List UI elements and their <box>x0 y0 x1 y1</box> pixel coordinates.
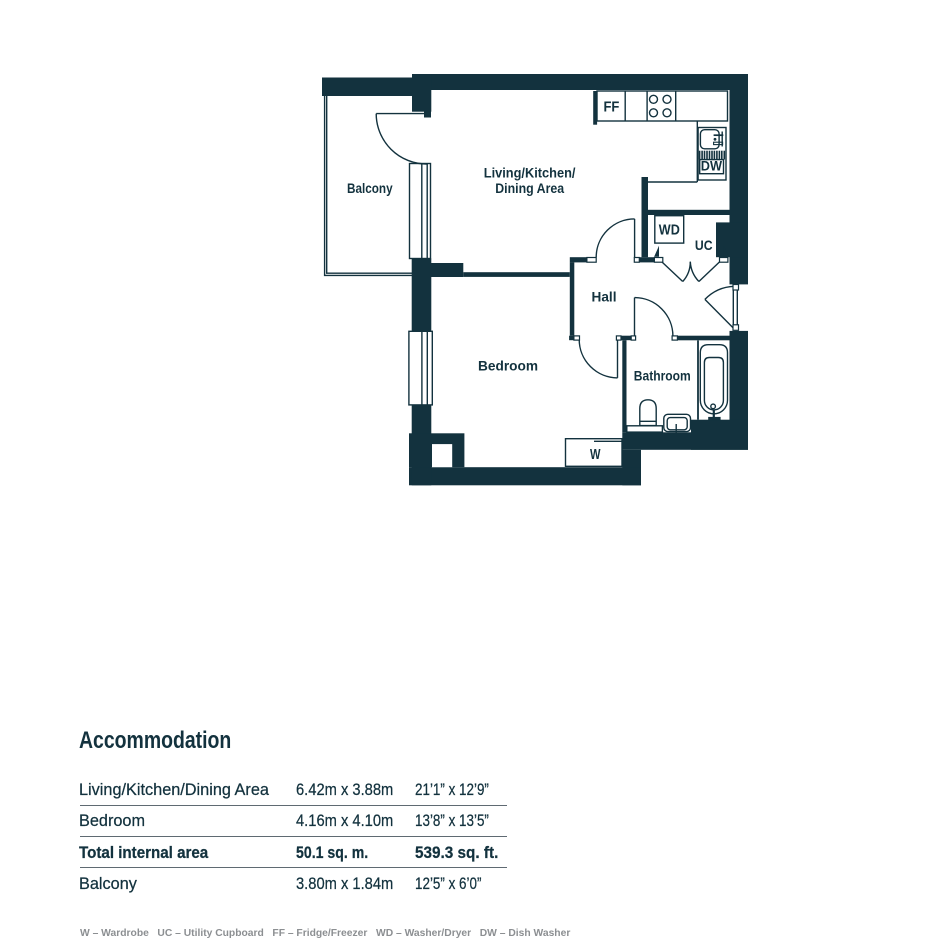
svg-text:DW: DW <box>701 158 723 173</box>
svg-text:Bathroom: Bathroom <box>634 367 691 383</box>
svg-text:Dining Area: Dining Area <box>495 180 564 196</box>
svg-text:WD: WD <box>659 221 680 238</box>
svg-text:Living/Kitchen/: Living/Kitchen/ <box>484 165 576 181</box>
svg-text:W: W <box>590 446 601 463</box>
svg-text:UC: UC <box>695 237 713 253</box>
svg-text:Balcony: Balcony <box>347 180 393 196</box>
svg-text:Bedroom: Bedroom <box>478 357 538 373</box>
svg-text:FF: FF <box>603 99 619 116</box>
svg-text:Hall: Hall <box>592 288 617 304</box>
